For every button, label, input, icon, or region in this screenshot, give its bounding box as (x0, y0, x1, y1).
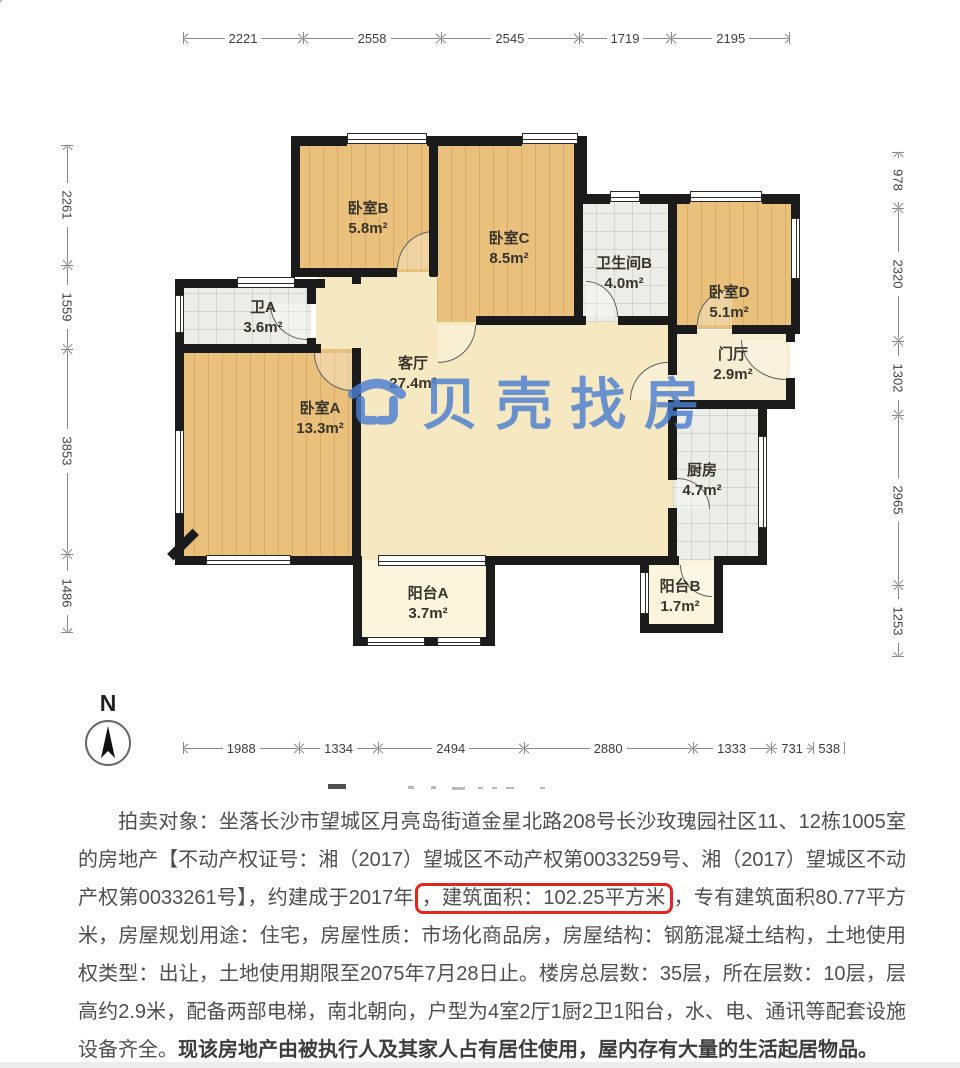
wall (640, 194, 690, 204)
room-area: 5.8m² (348, 219, 389, 239)
cropped-legend-fragment (408, 786, 414, 789)
dim-label: 2965 (890, 478, 907, 522)
room-name: 客厅 (389, 354, 437, 374)
dim-segment: 2195 (671, 29, 790, 47)
dim-label: 2261 (59, 183, 76, 227)
dim-segment: 1334 (299, 739, 377, 757)
wall (291, 268, 397, 277)
window (237, 277, 295, 288)
window (175, 295, 184, 333)
wall (486, 556, 495, 645)
dim-segment: 1988 (183, 739, 299, 757)
wall (668, 329, 677, 375)
dimension-ruler-top: 22212558254517192195 (183, 29, 790, 47)
room-area: 4.0m² (596, 274, 652, 294)
room-area: 3.7m² (408, 604, 449, 624)
room-label-bedroomD: 卧室D5.1m² (709, 283, 750, 323)
north-compass: N (80, 690, 136, 766)
room-area: 4.7m² (682, 481, 721, 501)
cropped-legend-fragment (452, 787, 465, 790)
window (791, 218, 800, 279)
room-name: 阳台A (408, 584, 449, 604)
room-label-bedroomC: 卧室C8.5m² (489, 229, 530, 269)
wall (353, 556, 362, 645)
room-label-balconyA: 阳台A3.7m² (408, 584, 449, 624)
dim-label: 2494 (432, 741, 469, 756)
window (437, 637, 481, 646)
wall (668, 508, 677, 560)
window (610, 191, 640, 202)
room-label-bathB: 卫生间B4.0m² (596, 254, 652, 294)
description-bold-note: 现该房地产由被执行人及其家人占有居住使用，屋内存有大量的生活起居物品。 (178, 1039, 878, 1061)
room-label-balconyB: 阳台B1.7m² (660, 577, 701, 617)
window (690, 191, 762, 202)
window (522, 133, 578, 144)
dim-segment: 1486 (58, 554, 76, 633)
room-name: 门厅 (713, 345, 752, 365)
dim-label: 2545 (491, 31, 528, 46)
room-area: 13.3m² (296, 419, 344, 439)
wall (175, 344, 321, 353)
wall (645, 624, 723, 633)
room-area: 27.4m² (389, 374, 437, 394)
room-label-hall: 门厅2.9m² (713, 345, 752, 385)
wall (495, 556, 646, 565)
dim-label: 1302 (890, 356, 907, 400)
cropped-legend-fragment (328, 784, 346, 789)
room-area: 2.9m² (713, 365, 752, 385)
dim-segment: 1719 (579, 29, 672, 47)
window (378, 555, 486, 566)
wall (714, 560, 723, 633)
cropped-legend-fragment (540, 787, 545, 789)
room-name: 卧室B (348, 199, 389, 219)
north-label: N (80, 690, 136, 717)
room-area: 8.5m² (489, 249, 530, 269)
room-name: 卫生间B (596, 254, 652, 274)
dim-label: 2880 (590, 741, 627, 756)
auction-description: 拍卖对象：坐落长沙市望城区月亮岛街道金星北路208号长沙玫瑰园社区11、12栋1… (78, 803, 906, 1068)
cropped-legend-fragment (506, 787, 514, 789)
dim-segment: 1559 (58, 265, 76, 348)
room-label-bedroomB: 卧室B5.8m² (348, 199, 389, 239)
dim-label: 538 (814, 741, 844, 756)
compass-needle-icon (88, 723, 128, 763)
wall (352, 268, 361, 284)
room-name: 卫A (243, 298, 282, 318)
wall (425, 637, 437, 646)
room-name: 阳台B (660, 577, 701, 597)
dim-segment: 2545 (441, 29, 578, 47)
wall (476, 316, 578, 325)
wall (481, 637, 495, 646)
dim-label: 1486 (59, 571, 76, 615)
wall (732, 325, 800, 334)
dim-label: 731 (777, 741, 807, 756)
room-area: 3.6m² (243, 318, 282, 338)
window (347, 133, 427, 144)
dim-segment: 731 (771, 739, 814, 757)
wall (574, 316, 586, 325)
dim-segment: 2261 (58, 145, 76, 265)
room-name: 厨房 (682, 461, 721, 481)
dim-label: 2320 (890, 252, 907, 296)
window (640, 572, 649, 614)
dim-segment: 1333 (693, 739, 771, 757)
room-label-bathA: 卫A3.6m² (243, 298, 282, 338)
dim-segment: 978 (889, 152, 907, 208)
cropped-legend-fragment (492, 787, 497, 789)
dim-label: 2558 (354, 31, 391, 46)
furniture-plate (0, 0, 2, 2)
dimension-ruler-bottom: 19881334249428801333731538 (183, 739, 845, 757)
room-label-bedroomA: 卧室A13.3m² (296, 399, 344, 439)
floorplan-figure: 卧室B5.8m²卧室C8.5m²卫生间B4.0m²卧室D5.1m²卫A3.6m²… (0, 0, 960, 800)
cropped-legend-fragment (431, 786, 436, 789)
wall (640, 614, 649, 633)
wall (786, 334, 795, 342)
dim-label: 1253 (890, 599, 907, 643)
dim-segment: 2494 (378, 739, 524, 757)
dim-segment: 2965 (889, 415, 907, 585)
wall (175, 279, 237, 288)
dimension-ruler-left: 2261155938531486 (58, 145, 76, 633)
room-area: 1.7m² (660, 597, 701, 617)
dim-segment: 1253 (889, 585, 907, 657)
dim-segment: 3853 (58, 349, 76, 554)
floor-area (316, 284, 356, 348)
wall (574, 136, 583, 325)
dim-label: 978 (890, 158, 907, 202)
dim-label: 2221 (225, 31, 262, 46)
wall (791, 194, 800, 218)
wall (668, 194, 677, 334)
room-name: 卧室D (709, 283, 750, 303)
dim-segment: 2320 (889, 208, 907, 341)
compass-circle (85, 720, 131, 766)
dim-segment: 2558 (303, 29, 441, 47)
dim-label: 1559 (59, 285, 76, 329)
wall (429, 136, 438, 276)
window (206, 555, 291, 565)
dim-segment: 538 (813, 739, 845, 757)
room-name: 卧室C (489, 229, 530, 249)
dim-label: 1719 (607, 31, 644, 46)
wall (677, 400, 762, 409)
dim-label: 1334 (320, 741, 357, 756)
dim-segment: 2221 (183, 29, 303, 47)
wall (427, 136, 522, 146)
wall (352, 348, 361, 560)
room-name: 卧室A (296, 399, 344, 419)
window (367, 637, 425, 646)
auction-notice-page: 卧室B5.8m²卧室C8.5m²卫生间B4.0m²卧室D5.1m²卫A3.6m²… (0, 0, 960, 1068)
room-label-living: 客厅27.4m² (389, 354, 437, 394)
wall (668, 400, 677, 480)
room-label-kitchen: 厨房4.7m² (682, 461, 721, 501)
building-area-highlight: ，建筑面积：102.25平方米 (415, 883, 673, 914)
wall (307, 284, 316, 304)
cropped-legend-fragment (478, 787, 483, 789)
dim-label: 3853 (59, 429, 76, 473)
wall (291, 136, 300, 277)
room-area: 5.1m² (709, 303, 750, 323)
dimension-ruler-right: 9782320130229651253 (889, 152, 907, 657)
window (175, 430, 184, 514)
dim-segment: 1302 (889, 341, 907, 416)
window (758, 436, 767, 528)
dim-label: 2195 (712, 31, 749, 46)
wall (353, 637, 367, 646)
dim-segment: 2880 (524, 739, 693, 757)
dim-label: 1333 (713, 741, 750, 756)
dim-label: 1988 (223, 741, 260, 756)
